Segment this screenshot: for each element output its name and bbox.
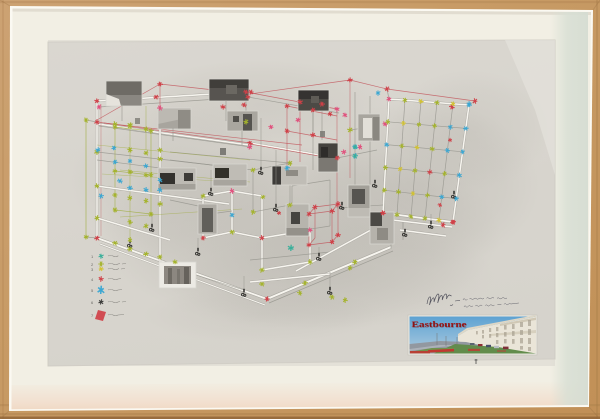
svg-text:Eastbourne: Eastbourne	[412, 319, 467, 329]
